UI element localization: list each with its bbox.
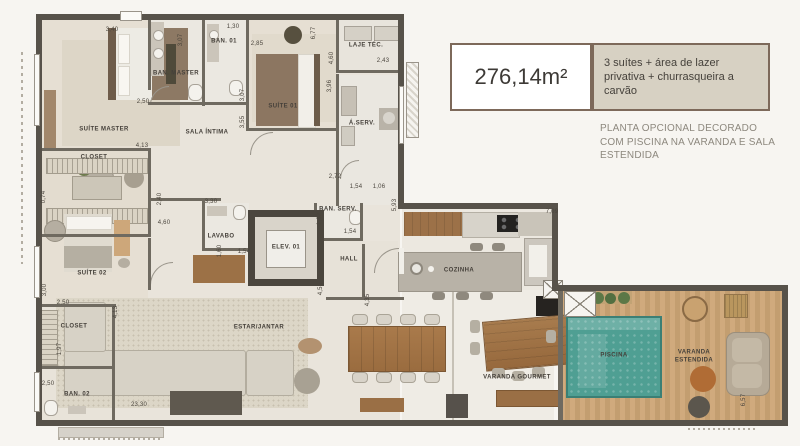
room-label-suite-master: SUÍTE MASTER <box>79 126 128 134</box>
wall-int <box>112 304 115 422</box>
wall-deck-right <box>782 285 788 426</box>
stool <box>456 292 469 300</box>
dining-chair <box>376 372 392 383</box>
wall-int <box>246 20 249 130</box>
dimension-label: 4,13 <box>136 143 148 149</box>
property-line <box>21 52 23 264</box>
area-value: 276,14m² <box>475 64 568 90</box>
room-label-ban-master: BAN. MASTER <box>153 70 199 78</box>
window <box>34 372 40 412</box>
room-label-varanda-gourmet: VARANDA GOURMET <box>483 374 551 382</box>
closet-island <box>72 176 122 200</box>
dimension-label: 1,06 <box>373 184 385 190</box>
wall-int <box>336 74 339 206</box>
dimension-label: 2,72 <box>329 174 341 180</box>
dimension-label: 6,57 <box>741 394 747 406</box>
gourmet-chair <box>470 320 480 333</box>
room-label-closet-02: CLOSET <box>61 323 88 331</box>
dining-chair <box>424 314 440 325</box>
pool-step <box>568 318 660 330</box>
armchair-estar <box>298 338 322 354</box>
exterior-shaft <box>406 62 419 138</box>
dimension-label: 2,43 <box>377 58 389 64</box>
wardrobe-suite-master <box>44 90 56 148</box>
area-box: 276,14m² <box>450 43 592 111</box>
features-text: 3 suítes + área de lazer privativa + chu… <box>604 56 758 99</box>
bed-suite-master-headboard <box>108 28 116 100</box>
dining-chair <box>400 314 416 325</box>
shaft-box <box>564 291 596 317</box>
dimension-label: 3,40 <box>106 27 118 33</box>
wall-int <box>202 20 205 106</box>
wall-wing-top <box>398 203 558 209</box>
dimension-label: 3,07 <box>240 89 246 101</box>
dimension-label: 1,30 <box>227 24 239 30</box>
dimension-label: 1,54 <box>350 184 362 190</box>
dimension-label: 2,50 <box>137 99 149 105</box>
wall-int <box>202 200 205 250</box>
dining-chair <box>352 314 368 325</box>
pillow <box>118 66 130 96</box>
tanque-a-serv <box>341 86 357 116</box>
bed-suite-02-blanket <box>64 246 112 268</box>
tv-console <box>170 391 242 415</box>
dimension-label: 0,74 <box>41 191 47 203</box>
room-label-suite-01: SUÍTE 01 <box>268 103 297 111</box>
bed-suite-02-pillows <box>66 216 112 230</box>
wall-int <box>360 203 363 241</box>
room-label-ban-02: BAN. 02 <box>64 391 90 399</box>
washer-door <box>383 112 395 124</box>
wall-int <box>36 234 151 237</box>
floor-plan-screenshot: SUÍTE MASTERBAN. MASTERBAN. 01SUÍTE 01LA… <box>0 0 800 446</box>
room-label-estar-jantar: ESTAR/JANTAR <box>234 324 284 332</box>
wall-int <box>148 20 151 90</box>
rattan-table <box>682 296 708 322</box>
laje-panel <box>374 26 400 41</box>
room-label-varanda-estendida: VARANDA ESTENDIDA <box>662 350 726 365</box>
dining-chair <box>376 314 392 325</box>
fridge-door <box>529 245 547 277</box>
gourmet-bench <box>496 390 560 407</box>
counter-wood <box>404 212 462 236</box>
bed-suite-01-headboard <box>314 54 320 126</box>
dimension-label: 6,77 <box>311 27 317 39</box>
window <box>34 54 40 126</box>
dining-chair <box>400 372 416 383</box>
room-label-sala-intima: SALA ÍNTIMA <box>186 129 229 137</box>
coffee-table <box>294 368 320 394</box>
dimension-label: 3,96 <box>327 80 333 92</box>
toilet-ban-master <box>188 84 203 101</box>
armchair-suite-02 <box>44 220 66 242</box>
sink-ban-02 <box>68 406 86 414</box>
dimension-label: 4,35 <box>365 294 371 306</box>
wall-int <box>246 128 338 131</box>
dimension-label: 1,60 <box>217 245 223 257</box>
wall-int <box>148 102 248 105</box>
gourmet-chair <box>470 342 480 355</box>
dining-chair <box>424 372 440 383</box>
sink-lavabo <box>207 206 227 216</box>
plant <box>618 292 630 304</box>
rattan-square <box>724 294 748 318</box>
dimension-label: 2,50 <box>42 381 54 387</box>
island-plate <box>428 266 434 272</box>
console-elevator <box>193 255 245 283</box>
tick-marks <box>688 428 758 430</box>
wall-tag <box>120 11 142 21</box>
wall-int <box>42 148 150 151</box>
room-label-piscina: PISCINA <box>600 352 627 360</box>
tick-marks <box>58 438 162 440</box>
outdoor-sofa-cushion <box>732 364 762 388</box>
dimension-label: 4,55 <box>318 283 324 295</box>
dimension-label: 4,60 <box>158 220 170 226</box>
side-table-wood <box>690 366 716 392</box>
entry-door-gap <box>399 248 404 274</box>
window <box>399 86 404 144</box>
room-label-cozinha: COZINHA <box>444 267 474 275</box>
island-sink <box>410 262 423 275</box>
room-label-elev-01: ELEV. 01 <box>272 244 300 252</box>
desk-suite-02 <box>114 220 130 256</box>
dimension-label: 3,07 <box>178 34 184 46</box>
dimension-label: 1,54 <box>344 229 356 235</box>
wall-int <box>148 148 151 236</box>
toilet-lavabo <box>233 205 246 220</box>
dimension-label: 2,85 <box>251 41 263 47</box>
wall-top <box>36 14 404 20</box>
dimension-label: 7,09 <box>546 209 558 215</box>
pool-seat <box>578 334 606 388</box>
basin <box>153 48 164 59</box>
gourmet-chair <box>546 330 556 343</box>
dimension-label: 1,97 <box>57 343 63 355</box>
dimension-label: 5,93 <box>392 199 398 211</box>
cabinet-column <box>518 212 556 236</box>
stool <box>470 243 483 251</box>
room-label-ban-serv: BAN. SERV. <box>319 206 357 214</box>
desk-chair-suite-02 <box>118 258 130 268</box>
dimension-label: 4,13 <box>113 306 119 318</box>
dimension-label: 4,60 <box>329 52 335 64</box>
wall-int <box>336 70 401 73</box>
pillow <box>118 34 130 64</box>
outdoor-sofa-cushion <box>732 338 762 362</box>
dining-chair <box>352 372 368 383</box>
stool <box>432 292 445 300</box>
bed-suite-master-throw <box>166 44 176 84</box>
cabinet-a-serv <box>341 126 355 146</box>
wall-int <box>36 304 116 307</box>
sofa-chaise <box>246 350 294 396</box>
wall-vg-deck <box>558 291 563 420</box>
closet-02-rack <box>40 310 58 366</box>
toilet-ban-02 <box>44 400 58 416</box>
chair-suite-01 <box>284 26 302 44</box>
room-label-a-serv: Á.SERV. <box>349 120 375 128</box>
dining-table <box>348 326 446 372</box>
side-table-dark <box>688 396 710 418</box>
dimension-label: 1,62 <box>317 213 323 225</box>
wall-bottom <box>36 420 788 426</box>
sofa-estar <box>64 350 246 396</box>
features-box: 3 suítes + área de lazer privativa + chu… <box>592 43 770 111</box>
room-label-laje-tec: LAJE TÉC. <box>349 42 383 50</box>
dimension-label: 2,50 <box>57 300 69 306</box>
room-label-lavabo: LAVABO <box>208 233 235 241</box>
dimension-label: 3,00 <box>42 284 48 296</box>
sideboard-dining <box>360 398 404 412</box>
stool <box>480 292 493 300</box>
stool <box>492 243 505 251</box>
dimension-label: 3,55 <box>240 116 246 128</box>
dimension-label: 3,30 <box>205 199 217 205</box>
wall-int <box>336 20 339 72</box>
room-label-ban-01: BAN. 01 <box>211 38 237 46</box>
dimension-label: 2,40 <box>157 193 163 205</box>
wall-wing-right <box>552 203 558 291</box>
room-label-suite-02: SUÍTE 02 <box>77 270 106 278</box>
room-label-hall: HALL <box>340 256 358 264</box>
room-label-closet-master: CLOSET <box>81 154 108 162</box>
churrasqueira <box>536 296 560 316</box>
wall-int <box>148 238 151 290</box>
window <box>34 246 40 298</box>
plant <box>605 293 616 304</box>
plan-note: PLANTA OPCIONAL DECORADO COM PISCINA NA … <box>600 122 778 163</box>
gourmet-cabinet <box>446 394 468 418</box>
dimension-label: 1,54 <box>238 249 250 255</box>
balcony-ledge <box>58 427 164 438</box>
wall-int <box>36 366 114 369</box>
basin <box>153 30 164 41</box>
wall-deck-top <box>552 285 788 291</box>
laje-panel <box>344 26 372 41</box>
dimension-label: 23,30 <box>131 402 147 408</box>
wall-int <box>362 244 365 300</box>
